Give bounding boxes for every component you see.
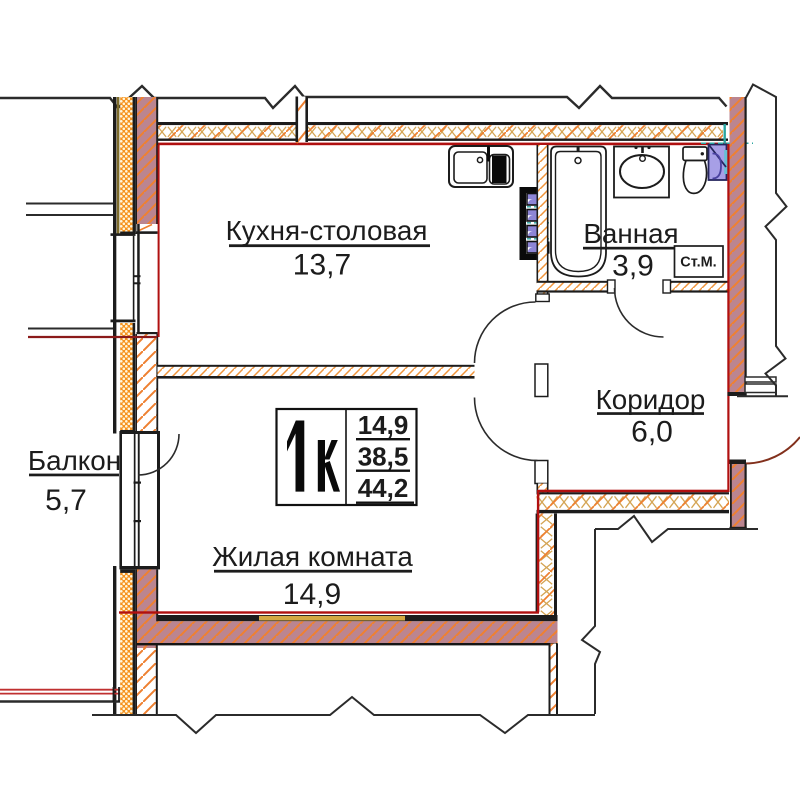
svg-text:Ст.М.: Ст.М. (680, 255, 716, 271)
svg-text:5,7: 5,7 (45, 484, 87, 517)
svg-text:13,7: 13,7 (293, 249, 351, 282)
svg-text:3,9: 3,9 (612, 250, 654, 283)
svg-text:Жилая комната: Жилая комната (212, 541, 413, 572)
svg-text:6,0: 6,0 (631, 416, 673, 449)
svg-text:38,5: 38,5 (358, 442, 409, 472)
svg-text:44,2: 44,2 (358, 473, 409, 503)
svg-text:Балкон: Балкон (28, 445, 121, 476)
svg-text:14,9: 14,9 (358, 410, 409, 440)
svg-text:Кухня-столовая: Кухня-столовая (226, 215, 428, 246)
svg-text:14,9: 14,9 (283, 578, 341, 611)
svg-text:Коридор: Коридор (596, 384, 706, 415)
svg-text:Ванная: Ванная (583, 218, 678, 249)
